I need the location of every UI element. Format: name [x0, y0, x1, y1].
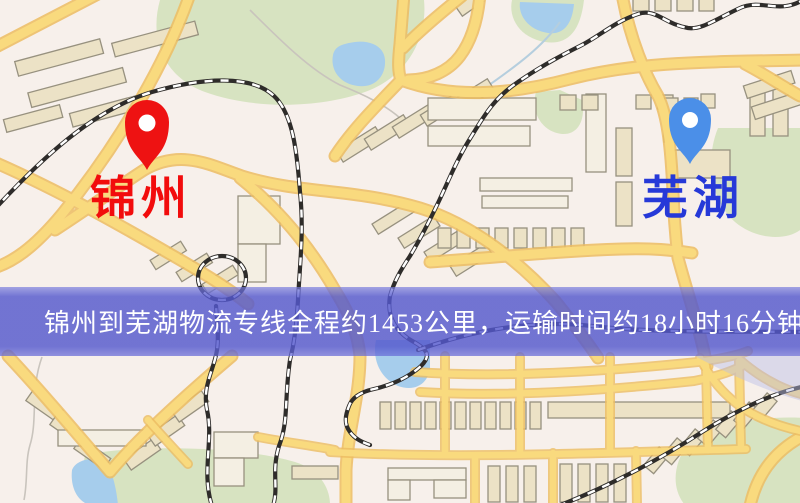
map-graphic	[0, 0, 800, 503]
destination-pin-icon	[661, 96, 719, 168]
origin-city-label: 锦州	[90, 176, 192, 222]
origin-pin-icon	[116, 98, 178, 174]
route-summary-text: 锦州到芜湖物流专线全程约1453公里，运输时间约18小时16分钟.	[44, 303, 800, 340]
destination-city-label: 芜湖	[642, 176, 744, 222]
route-summary-banner: 锦州到芜湖物流专线全程约1453公里，运输时间约18小时16分钟.	[0, 287, 800, 356]
map-image: 锦州 芜湖 锦州到芜湖物流专线全程约1453公里，运输时间约18小时16分钟.	[0, 0, 800, 503]
